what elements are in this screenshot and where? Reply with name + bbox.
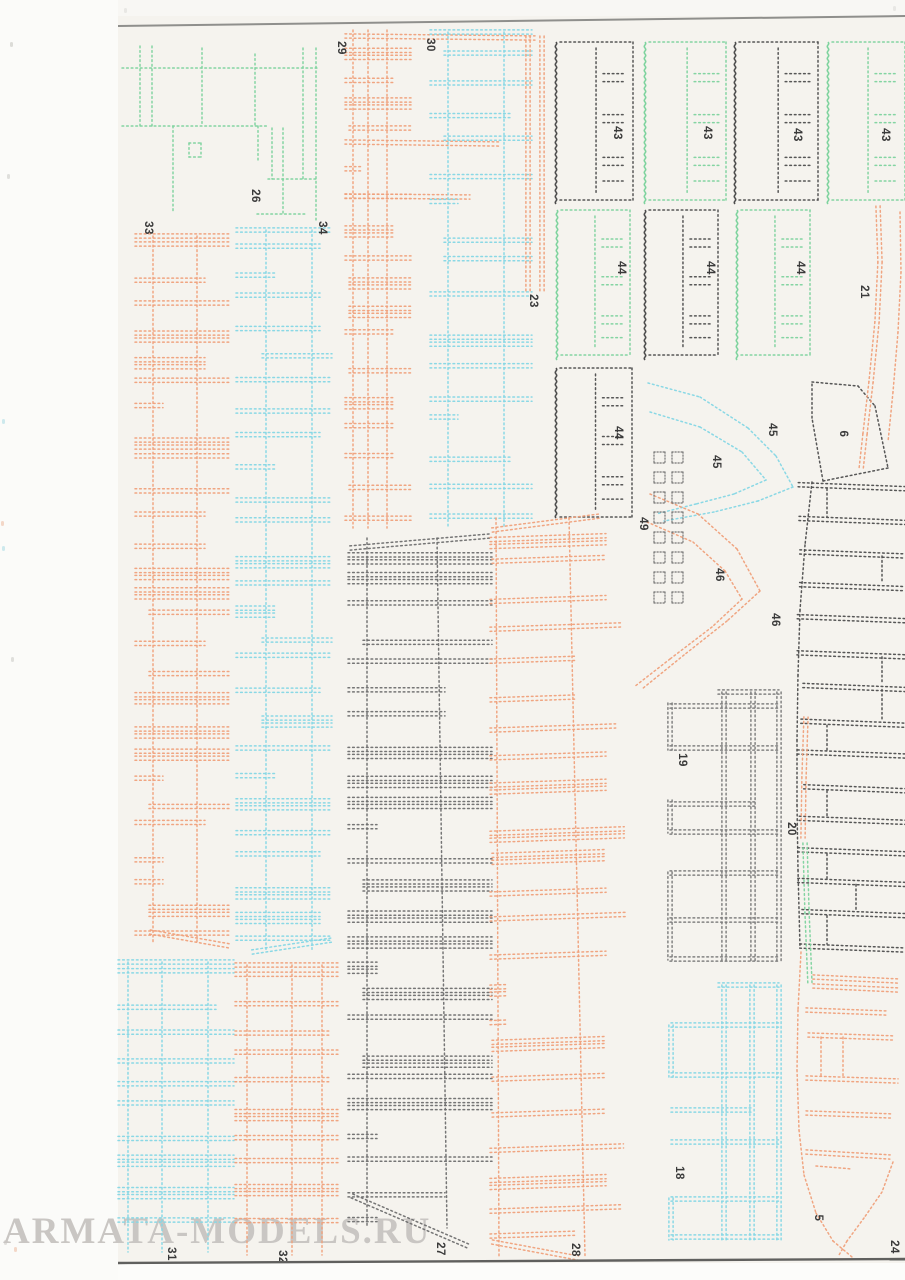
paper-bottom-strip: [118, 1263, 905, 1280]
scan-speck: [124, 8, 127, 13]
scan-speck: [10, 42, 13, 47]
scan-speck: [11, 657, 14, 662]
paper-background: [118, 16, 905, 1263]
scan-speck: [1, 521, 4, 526]
scanned-model-sheet: ARMATA-MODELS.RU 33263429302343434343444…: [0, 0, 905, 1280]
scan-speck: [7, 174, 10, 179]
scan-speck: [2, 419, 5, 424]
scan-speck: [2, 546, 5, 551]
paper-top-strip: [118, 0, 905, 16]
scan-speck: [893, 6, 896, 11]
watermark-text: ARMATA-MODELS.RU: [3, 1213, 431, 1250]
